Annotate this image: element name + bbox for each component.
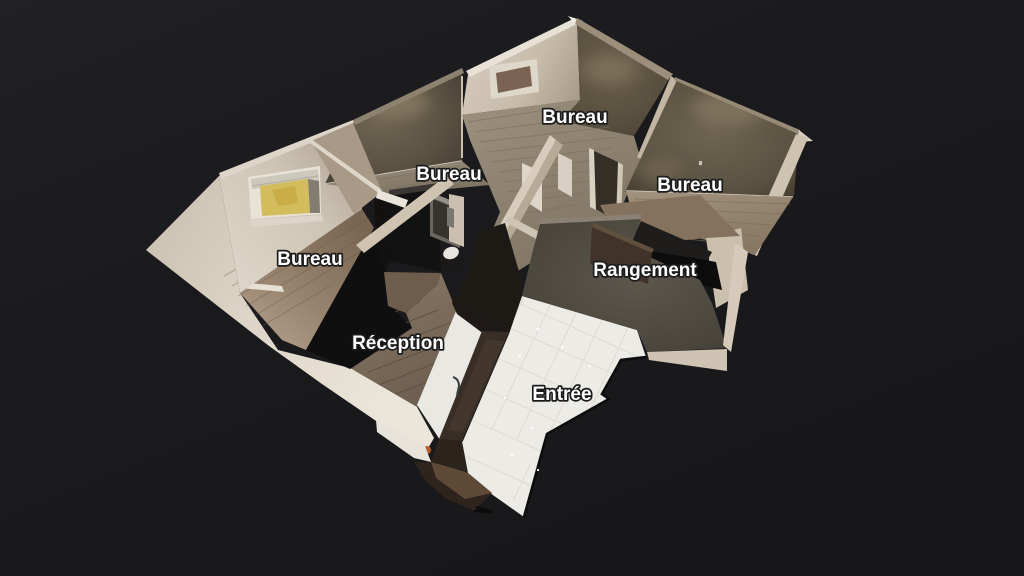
svg-text:Bureau: Bureau bbox=[416, 164, 481, 185]
svg-text:Entrée: Entrée bbox=[532, 384, 591, 405]
svg-text:Rangement: Rangement bbox=[593, 260, 697, 281]
svg-text:Bureau: Bureau bbox=[657, 175, 722, 196]
svg-text:Bureau: Bureau bbox=[277, 249, 342, 270]
svg-text:Réception: Réception bbox=[352, 333, 444, 354]
svg-text:Bureau: Bureau bbox=[542, 107, 607, 128]
